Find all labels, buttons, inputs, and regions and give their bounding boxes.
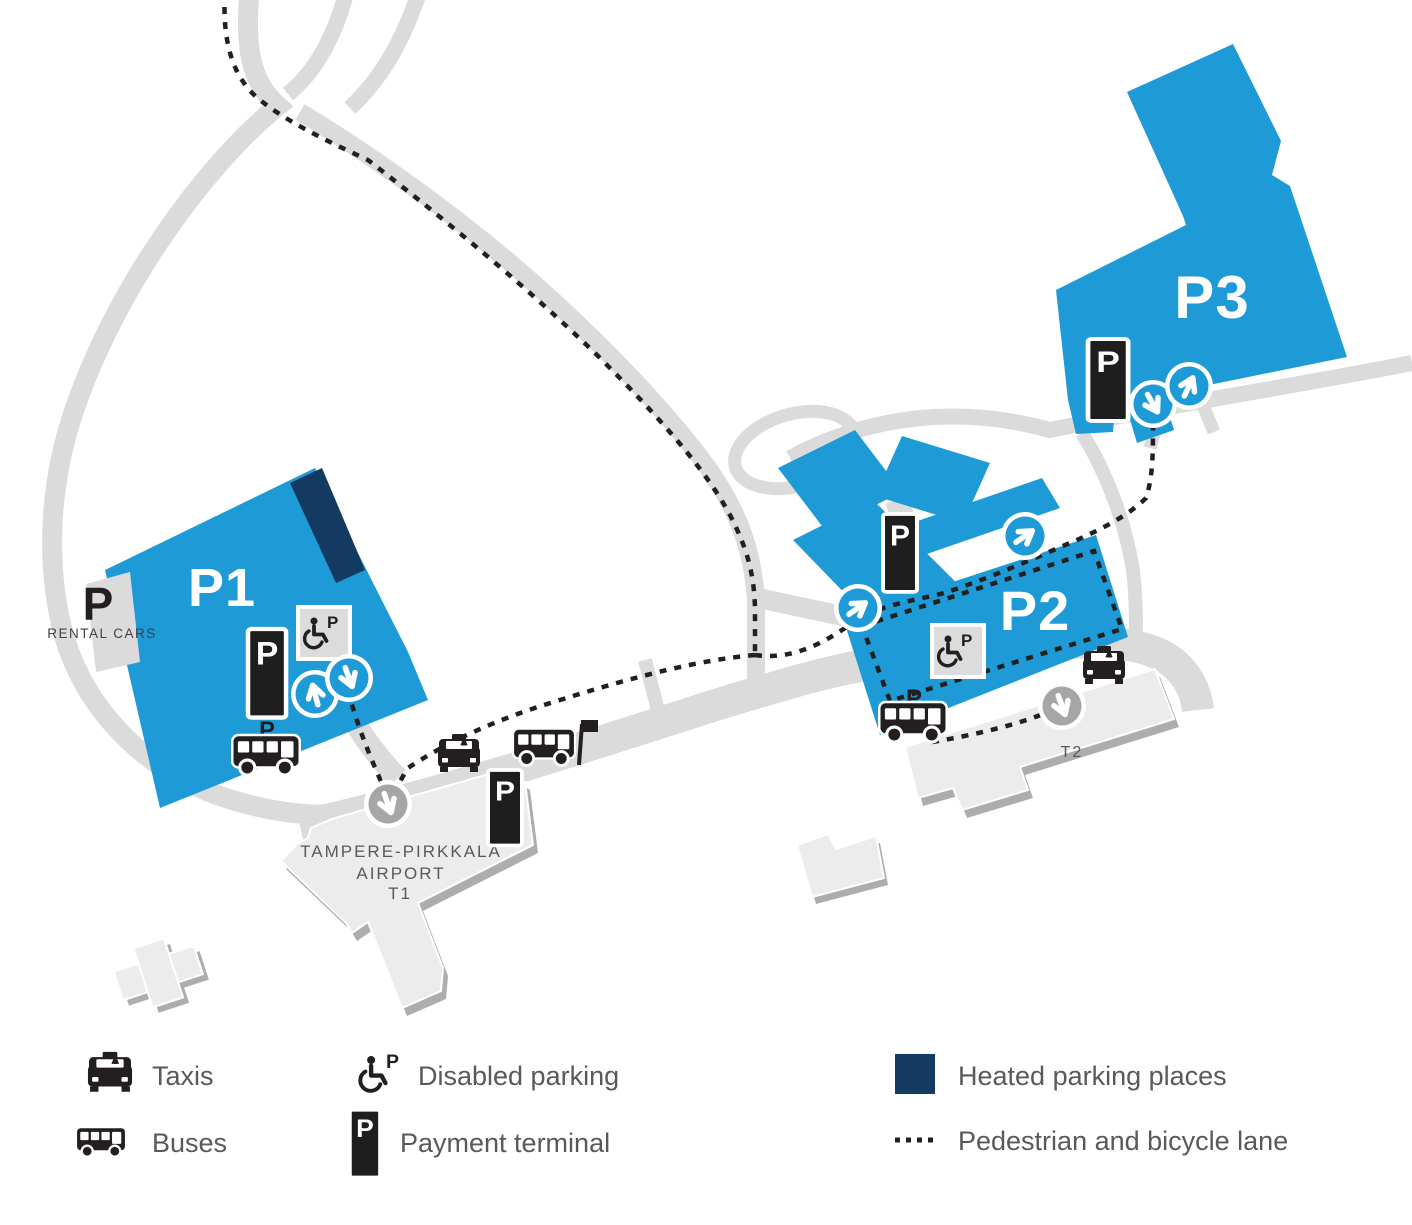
terminal-1-line2: AIRPORT bbox=[356, 864, 445, 883]
taxi-icon-legend bbox=[88, 1052, 132, 1092]
payment-terminal-icon-t1 bbox=[488, 770, 522, 845]
payment-terminal-icon-p2 bbox=[883, 514, 917, 592]
p1-label: P1 bbox=[188, 558, 256, 618]
bus-icon-p1 bbox=[232, 735, 300, 775]
bus-icon-legend bbox=[76, 1127, 126, 1156]
taxi-icon-t2 bbox=[1083, 646, 1125, 684]
payment-terminal-icon-legend bbox=[350, 1110, 380, 1177]
legend-payment-label: Payment terminal bbox=[400, 1128, 610, 1158]
legend-disabled-label: Disabled parking bbox=[418, 1061, 619, 1091]
disabled-parking-sign-p1 bbox=[298, 607, 350, 659]
small-building-west bbox=[109, 929, 214, 1022]
road-t1-stub bbox=[645, 660, 660, 718]
airport-parking-map: P P bbox=[0, 0, 1412, 1225]
legend-buses-label: Buses bbox=[152, 1128, 227, 1158]
p2-label: P2 bbox=[1000, 579, 1071, 642]
legend-heated-label: Heated parking places bbox=[958, 1061, 1227, 1091]
road-ramp-north-1 bbox=[288, 0, 347, 94]
map-canvas: P P bbox=[0, 0, 1412, 1225]
small-building-center bbox=[797, 834, 888, 904]
rental-cars-label: RENTAL CARS bbox=[47, 626, 157, 641]
terminal-1-line3: T1 bbox=[388, 884, 412, 903]
taxi-icon-t1 bbox=[438, 734, 480, 772]
disabled-parking-icon-legend bbox=[360, 1051, 399, 1091]
terminal-1-line1: TAMPERE-PIRKKALA bbox=[300, 842, 502, 861]
terminal-2-label: T2 bbox=[1061, 744, 1084, 761]
payment-terminal-icon-p1 bbox=[248, 629, 286, 718]
heated-parking-swatch-legend bbox=[895, 1054, 935, 1094]
disabled-parking-sign-p2 bbox=[932, 625, 984, 677]
bus-icon-p2 bbox=[879, 702, 947, 742]
payment-terminal-icon-p3 bbox=[1088, 339, 1128, 421]
legend-taxis-label: Taxis bbox=[152, 1061, 214, 1091]
rental-cars-p: P bbox=[83, 578, 114, 630]
legend: Taxis Buses Disabled parking Payment ter… bbox=[76, 1051, 1288, 1177]
legend-pedestrian-label: Pedestrian and bicycle lane bbox=[958, 1126, 1288, 1156]
p3-label: P3 bbox=[1174, 264, 1249, 331]
road-ramp-north-2 bbox=[350, 0, 420, 108]
